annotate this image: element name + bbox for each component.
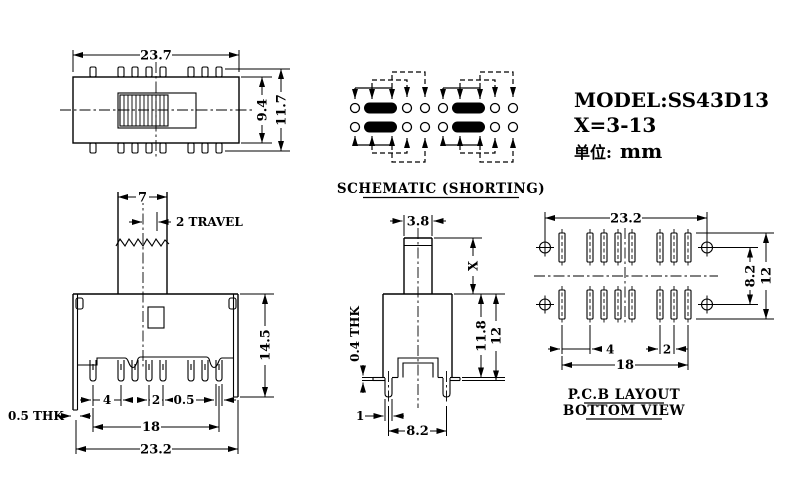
schematic-title: SCHEMATIC (SHORTING)	[337, 181, 545, 197]
dim-metal-thickness: 0.4 THK	[348, 306, 373, 393]
slider-window	[118, 93, 196, 128]
dim-label-7: 7	[138, 191, 147, 206]
dim-plate-thickness: 0.5 THK	[8, 409, 91, 423]
dim-label-pcb-23-2: 23.2	[610, 212, 642, 227]
top-view: 23.7 9.4 11.7	[60, 48, 290, 158]
body-bottom-profile	[78, 357, 234, 368]
pcb-layout-view: 23.2 8.2 12 4 2	[534, 211, 775, 419]
dim-label-12-side: 12	[490, 327, 505, 345]
slider-knob	[120, 95, 168, 126]
dim-label-4: 4	[103, 393, 111, 407]
unit-value: mm	[620, 139, 662, 163]
unit-text: 单位:mm	[574, 139, 662, 163]
dim-label-pcb-8-2: 8.2	[744, 265, 759, 288]
info-block: MODEL:SS43D13 X=3-13 单位:mm	[574, 88, 769, 163]
front-stem	[116, 192, 169, 294]
pcb-title-line2: BOTTOM VIEW	[563, 403, 686, 419]
detent-window	[148, 307, 164, 328]
dim-label-0-5: 0.5	[174, 393, 195, 407]
dim-stem-height-x: X	[434, 238, 505, 294]
dim-label-2: 2	[152, 393, 160, 407]
dim-label-18: 18	[142, 420, 160, 435]
side-view: 3.8 X 11.8 12 0.4 THK 1	[348, 215, 505, 440]
dim-label-pcb-18: 18	[616, 358, 634, 373]
dim-label-11-8: 11.8	[475, 320, 490, 352]
model-text: MODEL:SS43D13	[574, 88, 769, 112]
dim-pcb-pitch2: 2	[646, 325, 688, 357]
dim-pcb-pitch4: 4	[548, 325, 614, 357]
dim-label-pcb-12: 12	[760, 267, 775, 285]
dim-knob-width: 7	[118, 190, 167, 206]
dim-label-1: 1	[356, 409, 364, 423]
unit-label: 单位:	[574, 143, 612, 162]
pcb-title-line1: P.C.B LAYOUT	[568, 387, 680, 403]
drawing-canvas: 23.7 9.4 11.7 SCHEMATIC (SHORTING) MODEL…	[0, 0, 800, 480]
front-view: 7 2 TRAVEL 14.5	[8, 190, 274, 458]
dim-label-0-4-thk: 0.4 THK	[348, 306, 362, 362]
stem-break-zigzag	[116, 239, 169, 246]
dim-pcb-row-pitch: 8.2	[714, 248, 759, 305]
dim-label-pcb-4: 4	[606, 343, 614, 357]
dim-travel: 2 TRAVEL	[129, 212, 243, 231]
corner-tab-right	[229, 298, 236, 309]
dim-label-pcb-2: 2	[663, 343, 671, 357]
pcb-title: P.C.B LAYOUT BOTTOM VIEW	[563, 387, 686, 419]
side-body	[373, 294, 460, 404]
dim-label-23-7: 23.7	[140, 49, 172, 64]
dim-label-9-4: 9.4	[256, 99, 271, 122]
dim-label-8-2-side: 8.2	[406, 424, 429, 439]
side-stem	[404, 238, 432, 294]
dim-label-11-7: 11.7	[275, 94, 290, 126]
dim-label-14-5: 14.5	[259, 329, 274, 361]
dim-label-travel: 2 TRAVEL	[176, 215, 243, 229]
schematic-pole-group-2	[439, 72, 518, 162]
dim-pcb-hole-span: 23.2	[545, 211, 707, 240]
dim-leg-width: 1	[356, 399, 404, 423]
dim-label-x: X	[467, 260, 482, 271]
x-range-text: X=3-13	[574, 113, 656, 137]
dim-front-height: 14.5	[240, 294, 274, 397]
dim-leg-span: 8.2	[389, 406, 447, 439]
engineering-drawing: 23.7 9.4 11.7 SCHEMATIC (SHORTING) MODEL…	[0, 0, 800, 480]
schematic-diagram: SCHEMATIC (SHORTING)	[337, 72, 545, 198]
dim-label-05-thk: 0.5 THK	[8, 409, 64, 423]
dim-pin-chain: 4 2 0.5	[80, 384, 236, 407]
dim-label-23-2: 23.2	[140, 443, 172, 458]
dim-pcb-height: 12	[696, 233, 775, 319]
schematic-pole-group-1	[351, 72, 430, 162]
dim-label-3-8: 3.8	[407, 215, 430, 230]
front-pins	[90, 360, 222, 381]
